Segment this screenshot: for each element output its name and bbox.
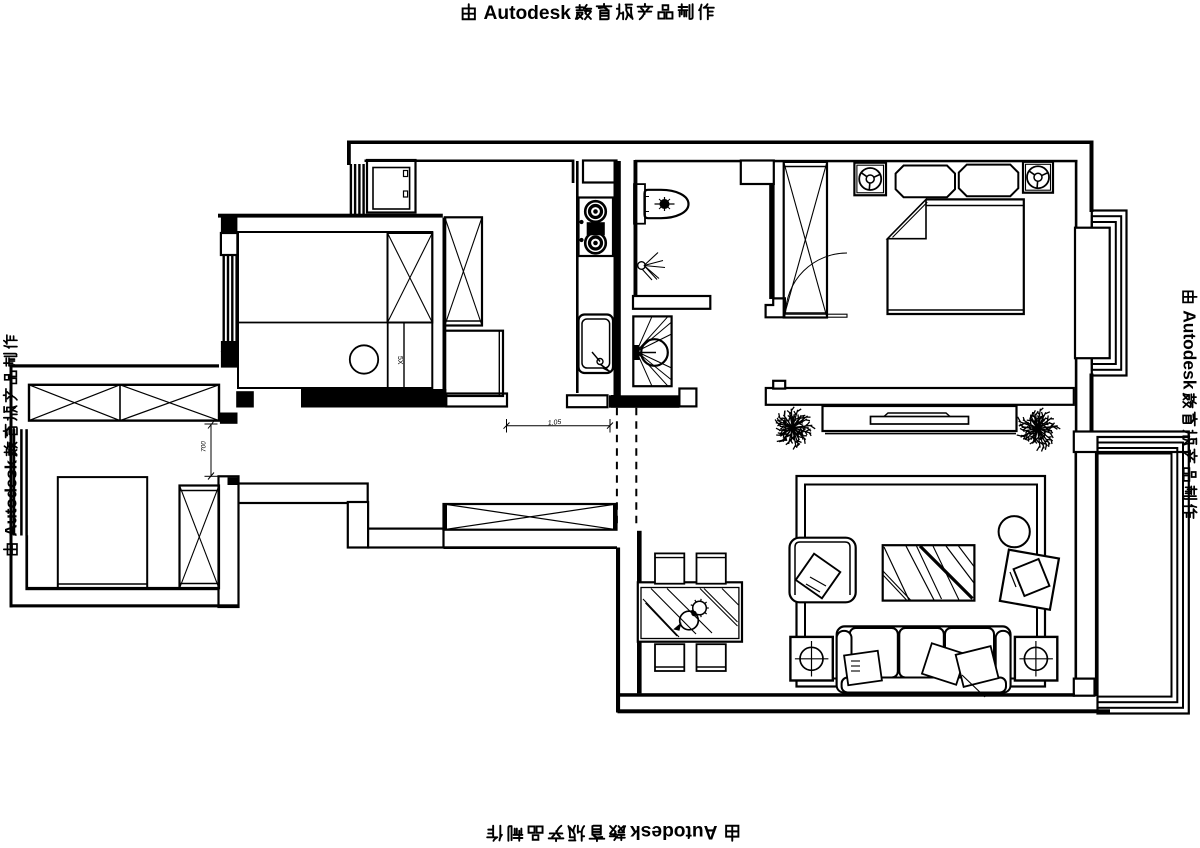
svg-text:Autodesk: Autodesk: [484, 3, 572, 24]
svg-text:700: 700: [201, 441, 208, 452]
svg-text:Autodesk: Autodesk: [1179, 310, 1199, 390]
svg-text:Autodesk: Autodesk: [630, 821, 718, 842]
svg-text:1.05: 1.05: [547, 419, 561, 427]
svg-text:5X: 5X: [396, 356, 403, 365]
svg-text:Autodesk: Autodesk: [2, 459, 21, 536]
